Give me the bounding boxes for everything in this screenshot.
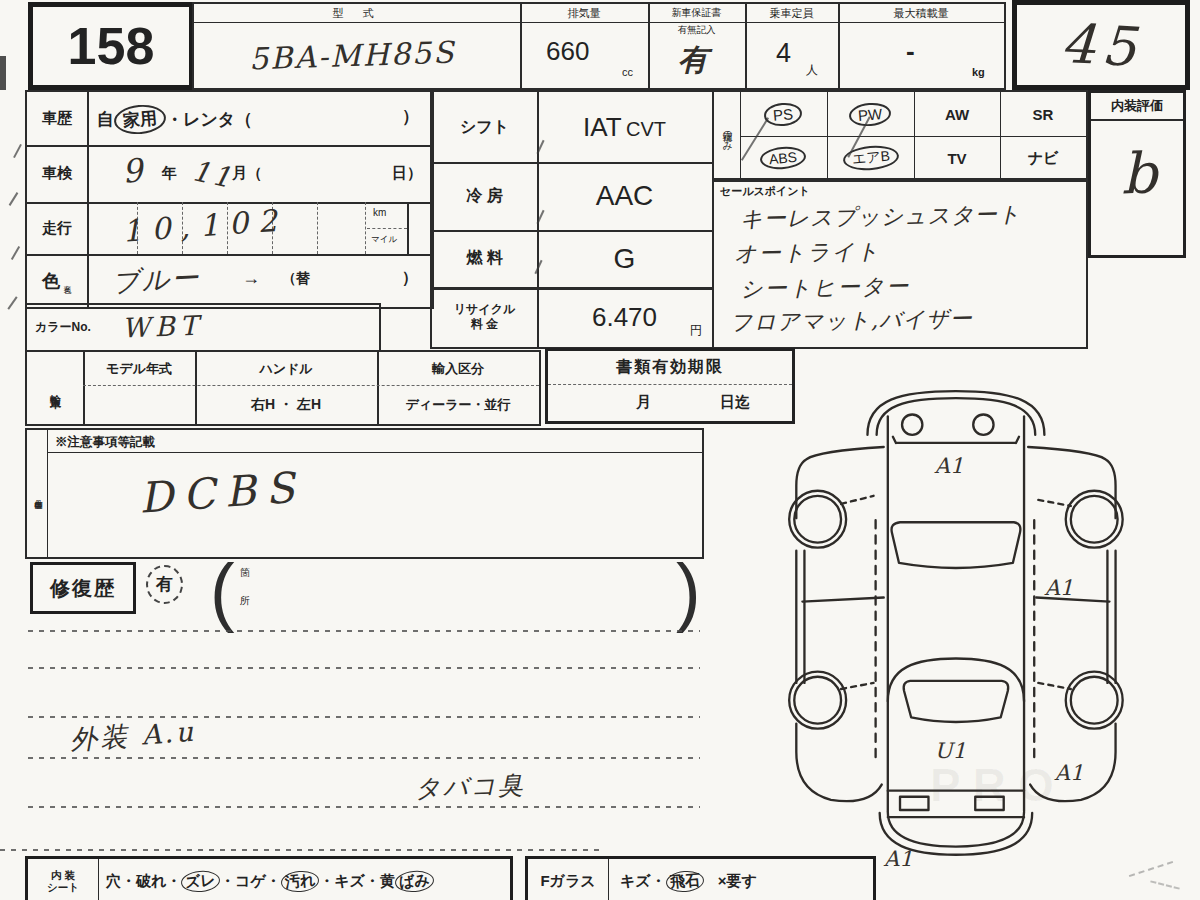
sales-points-label: セールスポイント	[720, 184, 810, 199]
pen-tick	[7, 296, 17, 309]
payload-label: 最大積載量	[894, 6, 949, 21]
inspection-day-unit: 日）	[392, 164, 422, 183]
front-glass-label: Fガラス	[540, 872, 595, 891]
history-circled-choice: 家用	[113, 103, 167, 136]
glass-item: キズ	[620, 872, 651, 891]
fuel-value: G	[614, 243, 636, 275]
damage-code-side-right: A1	[1043, 575, 1073, 600]
wheel-front-right	[1066, 491, 1123, 548]
interior-grade-value: b	[1120, 140, 1158, 206]
car-damage-diagram: A1 A1 U1 A1 A1	[782, 386, 1138, 872]
seat-item: 破れ	[136, 872, 166, 891]
capacity-label: 乗車定員	[770, 6, 814, 21]
memo-line	[28, 630, 700, 632]
color-no-value: WBT	[121, 310, 203, 344]
inspection-label: 車検	[42, 164, 72, 183]
pencil-scribble	[1150, 880, 1180, 889]
model-year-label: モデル年式	[106, 360, 172, 378]
documents-month: 月	[636, 393, 651, 412]
memo-exterior: 外装 A.u	[69, 714, 197, 759]
inspection-year-unit: 年	[162, 164, 177, 183]
strut-right	[973, 414, 993, 434]
handle-label: ハンドル	[259, 360, 312, 378]
grade-value: 45	[1059, 11, 1143, 78]
lot-number: 158	[68, 16, 155, 76]
license-plate	[900, 797, 928, 810]
seat-item: キズ	[334, 872, 365, 891]
interior-grade-label: 内装評価	[1111, 97, 1163, 115]
grade-box: 45	[1012, 0, 1190, 90]
history-post: ・レンタ（	[166, 110, 252, 129]
equipment-grid: 補正のみ PS PW AW SR ABS エアB TV ナビ	[712, 90, 1088, 182]
history-value: 自家用・レンタ（	[97, 105, 252, 134]
memo-line	[28, 667, 700, 669]
equipment-item-ps: PS	[764, 101, 804, 127]
reflector	[975, 797, 1003, 810]
interior-seat-items: 穴・破れ・ズレ・コゲ・汚れ・キズ・黄ばみ	[106, 859, 508, 900]
sales-point-line: キーレスプッシュスタート	[740, 200, 1022, 235]
documents-box: 書類有効期限 月 日迄	[545, 348, 795, 424]
displacement-unit: cc	[622, 66, 633, 78]
color-change-open: （替	[282, 270, 310, 288]
color-sub-label: 変色	[62, 279, 72, 283]
displacement-label: 排気量	[568, 6, 601, 21]
seat-item: 汚れ	[280, 869, 320, 893]
repair-spot-bottom: 所	[240, 594, 250, 608]
lot-number-box: 158	[28, 2, 194, 90]
interior-seat-label: 内 装	[51, 869, 75, 881]
repair-paren-open: (	[210, 547, 235, 634]
pen-tick	[11, 246, 20, 260]
auction-sheet: 158 型 式 排気量 新車保証書 乗車定員 最大積載量 5BA-MH85S 6…	[0, 0, 1200, 900]
import-type-options: ディーラー・並行	[406, 396, 511, 414]
damage-code-trunk: U1	[935, 738, 967, 763]
inspection-month: 11	[189, 154, 237, 195]
equipment-item-sr: SR	[1033, 106, 1054, 123]
shift-value: IAT CVT	[583, 112, 666, 143]
import-side-label: 輸入車	[48, 385, 63, 391]
displacement-value: 660	[546, 36, 589, 67]
left-rear-quarter	[796, 724, 881, 802]
mileage-unit-km: km	[373, 207, 386, 218]
glass-item: ×要す	[718, 872, 757, 891]
mileage-unit-mile: マイル	[371, 234, 397, 246]
wheel-front-left	[789, 491, 846, 548]
recycle-label: リサイクル	[454, 302, 515, 317]
documents-label: 書類有効期限	[616, 357, 724, 378]
seat-item: ズレ	[181, 869, 221, 893]
repair-history-value: 有	[146, 565, 183, 604]
memo-smell: タバコ臭	[414, 768, 525, 805]
inspection-year: 9	[120, 151, 144, 191]
memo-line	[0, 849, 600, 851]
color-value: ブルー	[111, 260, 201, 301]
color-no-box: カラーNo. WBT	[25, 303, 381, 352]
fuel-label: 燃 料	[466, 248, 502, 269]
mileage-label: 走行	[42, 219, 72, 238]
notes-value: DCBS	[137, 462, 305, 522]
shift-label: シフト	[460, 117, 509, 138]
equipment-item-aw: AW	[945, 106, 969, 123]
sales-point-line: シートヒーター	[740, 272, 911, 305]
mileage-value: 10,102	[121, 202, 288, 248]
wheel-rear-right	[1066, 672, 1123, 729]
scan-smudge	[0, 56, 6, 90]
history-label: 車歴	[42, 109, 72, 128]
equipment-side-label: 補正のみ	[721, 125, 734, 147]
model-code-label: 型 式	[332, 6, 381, 21]
damage-code-rear: A1	[883, 846, 913, 871]
history-close-paren: ）	[402, 105, 419, 128]
recycle-value: 6.470	[592, 302, 657, 333]
right-front-fender	[1028, 447, 1115, 518]
windshield	[892, 522, 1021, 568]
interior-seat-box: 内 装 シート 穴・破れ・ズレ・コゲ・汚れ・キズ・黄ばみ	[25, 856, 513, 900]
model-code-value: 5BA-MH85S	[248, 34, 456, 76]
seat-item: 黄	[380, 872, 395, 891]
notes-box: 出品店申告欄 ※注意事項等記載 DCBS	[25, 428, 704, 559]
warranty-sub-label: 有無記入	[678, 24, 716, 37]
pen-tick	[9, 192, 19, 206]
vehicle-info-table: 車歴 車検 走行 色 変色 自家用・レンタ（ ） 9 年 11 月（ 日） km…	[25, 90, 434, 309]
equipment-item-abs: ABS	[760, 145, 808, 171]
spec-table: シフト IAT CVT 冷 房 AAC 燃 料 G リサイクル 料 金 6.47…	[430, 90, 714, 349]
recycle-unit: 円	[690, 322, 702, 339]
history-pre: 自	[97, 110, 114, 129]
repair-spot-top: 箇	[240, 566, 250, 580]
handle-options: 右H ・ 左H	[251, 396, 321, 414]
repair-history-box: 修復歴	[30, 562, 136, 614]
import-type-label: 輸入区分	[432, 360, 484, 378]
strut-left	[902, 414, 922, 434]
equipment-item-pw: PW	[848, 101, 892, 128]
memo-line	[28, 757, 700, 759]
payload-value: -	[906, 36, 915, 67]
color-label: 色	[42, 269, 60, 293]
inspection-month-unit: 月（	[232, 164, 262, 183]
ac-label: 冷 房	[466, 186, 502, 207]
documents-day: 日迄	[720, 393, 750, 412]
capacity-unit: 人	[806, 62, 818, 79]
capacity-value: 4	[776, 38, 791, 69]
equipment-item-airbag: エアB	[842, 144, 900, 173]
warranty-value: 有	[678, 40, 708, 81]
repair-history-label: 修復歴	[50, 575, 116, 602]
sales-points-box: セールスポイント キーレスプッシュスタート オートライト シートヒーター フロア…	[712, 178, 1088, 349]
seat-item: 穴	[106, 872, 121, 891]
payload-unit: kg	[972, 66, 985, 78]
interior-grade-box: 内装評価 b	[1088, 90, 1186, 258]
left-front-fender	[796, 447, 883, 518]
seat-item: ばみ	[394, 869, 434, 893]
equipment-item-navi: ナビ	[1028, 149, 1059, 168]
seat-item: コゲ	[235, 872, 266, 891]
damage-code-quarter-right: A1	[1054, 760, 1084, 785]
color-close-paren: ）	[402, 268, 418, 289]
damage-code-hood: A1	[934, 453, 964, 478]
warranty-label: 新車保証書	[672, 6, 722, 20]
equipment-item-tv: TV	[947, 150, 966, 167]
notes-label: ※注意事項等記載	[55, 434, 155, 451]
wheel-rear-left	[789, 672, 846, 729]
color-no-label: カラーNo.	[35, 319, 91, 336]
memo-line	[28, 806, 700, 808]
import-table: 輸入車 モデル年式 ハンドル 輸入区分 右H ・ 左H ディーラー・並行	[25, 350, 541, 426]
rear-window	[904, 681, 1009, 722]
sales-point-line: オートライト	[734, 237, 881, 270]
color-arrow: →	[242, 268, 260, 289]
pen-tick	[13, 144, 22, 158]
sales-point-line: フロアマット,バイザー	[730, 304, 973, 338]
repair-paren-close: )	[676, 547, 701, 634]
header-table: 型 式 排気量 新車保証書 乗車定員 最大積載量 5BA-MH85S 660 c…	[192, 2, 1006, 90]
glass-item: 飛石	[665, 869, 705, 893]
ac-value: AAC	[596, 180, 654, 212]
